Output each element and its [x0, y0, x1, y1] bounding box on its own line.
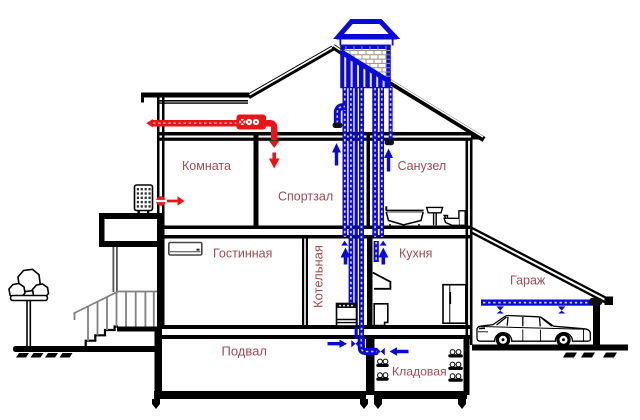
svg-text:Гостинная: Гостинная	[213, 247, 272, 261]
svg-text:Подвал: Подвал	[222, 344, 267, 359]
svg-text:Санузел: Санузел	[398, 159, 447, 173]
svg-text:Комната: Комната	[182, 159, 231, 173]
svg-text:Кладовая: Кладовая	[392, 365, 447, 379]
svg-text:Котельная: Котельная	[311, 245, 326, 308]
svg-text:Гараж: Гараж	[510, 274, 546, 288]
svg-text:Кухня: Кухня	[399, 247, 432, 261]
svg-text:Спортзал: Спортзал	[278, 190, 333, 204]
